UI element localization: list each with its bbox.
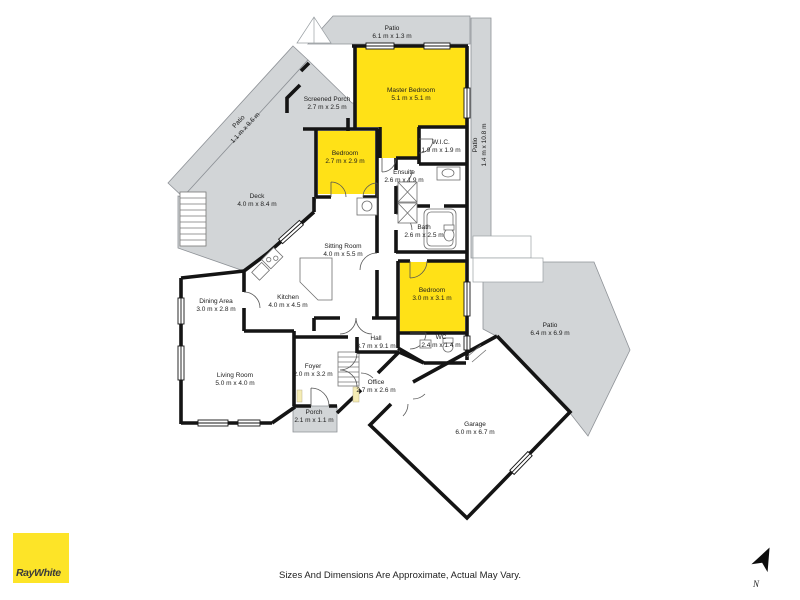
label-wc-name: WC: [436, 334, 447, 341]
label-sitting-room-name: Sitting Room: [324, 243, 361, 250]
label-patio-right-name: Patio: [543, 322, 558, 329]
label-hall-name: Hall: [370, 335, 382, 342]
label-foyer-name: Foyer: [305, 363, 322, 370]
label-foyer-dims: 2.0 m x 3.2 m: [293, 371, 332, 378]
label-patio-top-dims: 6.1 m x 1.3 m: [372, 33, 411, 40]
shower-stall: [398, 182, 417, 202]
label-master-bedroom-name: Master Bedroom: [387, 87, 435, 94]
label-office-dims: 2.7 m x 2.6 m: [356, 387, 395, 394]
label-office-name: Office: [368, 379, 385, 386]
label-patio-top-name: Patio: [385, 25, 400, 32]
deck-stairs: [180, 192, 206, 246]
label-dining-area-dims: 3.0 m x 2.8 m: [196, 306, 235, 313]
agency-logo-text: RayWhite: [13, 567, 61, 583]
toilet: [444, 225, 454, 241]
label-living-room-name: Living Room: [217, 372, 253, 379]
label-deck-dims: 4.0 m x 8.4 m: [237, 201, 276, 208]
label-bedroom3-dims: 3.0 m x 3.1 m: [412, 295, 451, 302]
label-screened-porch-dims: 2.7 m x 2.5 m: [307, 104, 346, 111]
label-hall-dims: 3.7 m x 9.1 m: [356, 343, 395, 350]
label-wic-name: W.I.C.: [432, 139, 450, 146]
label-master-bedroom-dims: 5.1 m x 5.1 m: [391, 95, 430, 102]
label-screened-porch-name: Screened Porch: [304, 96, 351, 103]
label-dining-area-name: Dining Area: [199, 298, 233, 305]
label-patio-strip-name: Patio: [472, 137, 479, 152]
window: [178, 298, 184, 324]
vanity-sink: [437, 167, 460, 180]
label-bedroom3-name: Bedroom: [419, 287, 445, 294]
shower-stall: [398, 203, 417, 223]
label-sitting-room-dims: 4.0 m x 5.5 m: [323, 251, 362, 258]
label-garage-name: Garage: [464, 421, 486, 428]
label-bath-name: Bath: [417, 224, 431, 231]
window: [464, 336, 470, 350]
label-kitchen-name: Kitchen: [277, 294, 299, 301]
window: [424, 43, 450, 49]
north-compass: N: [751, 544, 777, 589]
label-kitchen-dims: 4.0 m x 4.5 m: [268, 302, 307, 309]
label-ensuite-name: Ensuite: [393, 169, 415, 176]
window: [178, 346, 184, 380]
label-wic-dims: 1.9 m x 1.9 m: [421, 147, 460, 154]
label-patio-right-dims: 6.4 m x 6.9 m: [530, 330, 569, 337]
floorplan-page: Patio 6.1 m x 1.3 m Master Bedroom 5.1 m…: [0, 0, 800, 600]
label-living-room-dims: 5.0 m x 4.0 m: [215, 380, 254, 387]
patio-right-area: [483, 262, 630, 436]
label-ensuite-dims: 2.6 m x 1.9 m: [384, 177, 423, 184]
label-deck-name: Deck: [250, 193, 266, 200]
window: [366, 43, 394, 49]
label-bedroom2-dims: 2.7 m x 2.9 m: [325, 158, 364, 165]
washer: [357, 198, 377, 215]
label-bath-dims: 2.6 m x 2.5 m: [404, 232, 443, 239]
north-arrow-icon: [751, 544, 777, 573]
disclaimer-text: Sizes And Dimensions Are Approximate, Ac…: [0, 570, 800, 581]
floorplan-drawing: Patio 6.1 m x 1.3 m Master Bedroom 5.1 m…: [0, 0, 800, 600]
label-garage-dims: 6.0 m x 6.7 m: [455, 429, 494, 436]
label-porch-name: Porch: [306, 409, 323, 416]
window: [464, 88, 470, 118]
label-bedroom2-name: Bedroom: [332, 150, 358, 157]
label-patio-strip-dims: 1.4 m x 10.8 m: [481, 124, 488, 167]
window: [238, 420, 260, 426]
label-porch-dims: 2.1 m x 1.1 m: [294, 417, 333, 424]
label-wc-dims: 2.4 m x 1.4 m: [421, 342, 460, 349]
agency-logo: RayWhite: [13, 533, 69, 583]
window: [510, 452, 532, 475]
window: [464, 282, 470, 316]
window: [198, 420, 228, 426]
kitchen-island: [300, 258, 332, 300]
